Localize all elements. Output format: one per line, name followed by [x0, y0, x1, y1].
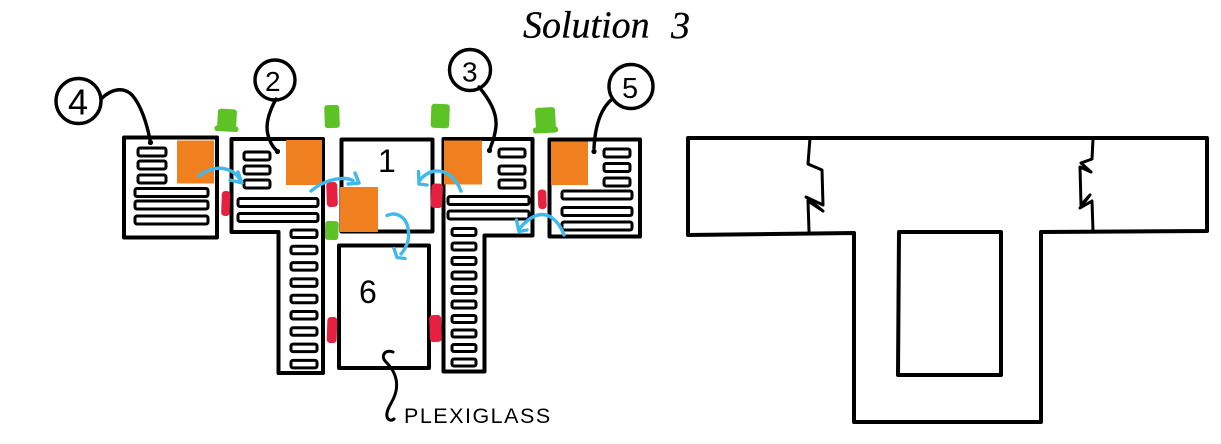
- svg-text:5: 5: [622, 73, 638, 105]
- svg-text:1: 1: [378, 143, 396, 179]
- svg-text:3: 3: [670, 5, 690, 47]
- svg-text:2: 2: [265, 66, 281, 97]
- svg-text:3: 3: [462, 57, 478, 88]
- svg-text:PLEXIGLASS: PLEXIGLASS: [404, 404, 552, 428]
- svg-text:Solution: Solution: [523, 5, 650, 47]
- svg-text:4: 4: [68, 82, 88, 123]
- svg-text:6: 6: [359, 274, 377, 310]
